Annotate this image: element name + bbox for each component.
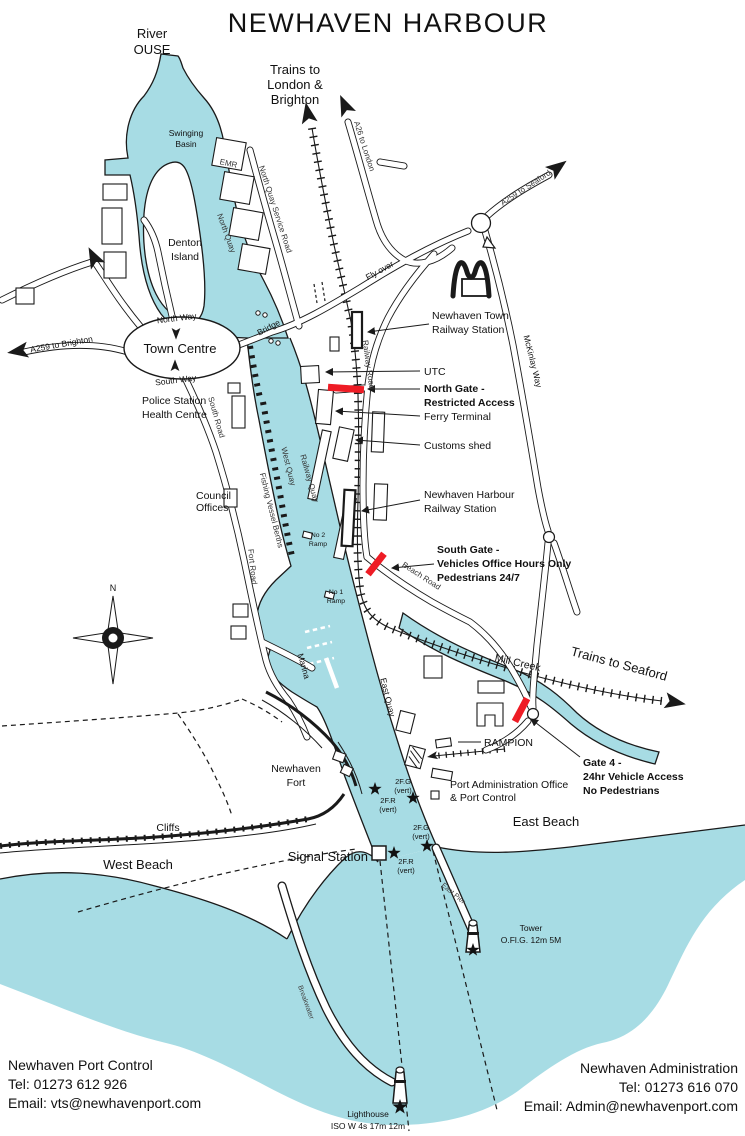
rampion-label: RAMPION [484,737,533,749]
police-health-label: Police Station [142,395,206,407]
west-beach-label: West Beach [103,857,173,872]
utc-label: UTC [424,366,446,378]
no1-ramp-label: No 1 [329,589,344,596]
harbour-station-label: Newhaven Harbour [424,489,515,501]
administration-tel: Tel: 01273 616 070 [619,1079,738,1095]
port-admin-label: & Port Control [450,792,516,804]
harbour-map: NEWHAVEN HARBOUR River OUSE Trains to Lo… [0,0,745,1136]
light-label-lower-west: 2F.R [398,857,414,866]
port-control-email: Email: vts@newhavenport.com [8,1095,201,1111]
trains-seaford-arrow [664,692,688,712]
mini-roundabout-gate4 [528,709,539,720]
newhaven-fort-label: Fort [287,777,306,789]
signal-station-label: Signal Station [288,849,368,864]
signal-station-box [372,846,386,860]
newhaven-town-station-building [352,312,362,348]
port-control-name: Newhaven Port Control [8,1057,153,1073]
utc-building [301,366,320,384]
mckinlay-way-label: McKinlay Way [522,334,545,389]
south-gate-label: Vehicles Office Hours Only [437,558,571,570]
south-gate-label: Pedestrians 24/7 [437,572,520,584]
gate4-label: 24hr Vehicle Access [583,771,684,783]
light-label-lower-east: (vert) [412,832,430,841]
newhaven-harbour-station-building [342,490,356,546]
channel-dash [322,282,325,301]
harbour-station-label: Railway Station [424,503,497,515]
no1-ramp-label: Ramp [327,598,345,605]
mcdonalds-icon [453,263,489,296]
rampion-building [478,681,504,693]
north-gate-label: North Gate - [424,383,485,395]
swinging-basin-label: Swinging [169,128,204,138]
council-offices-label: Offices [196,502,228,514]
south-gate-label: South Gate - [437,544,500,556]
roundabout [472,214,491,233]
trains-london-label: Trains to [270,62,320,77]
swinging-basin-label: Basin [175,139,197,149]
lighthouse-label: ISO W 4s 17m 12m [331,1121,405,1131]
customs-shed-label: Customs shed [424,440,491,452]
port-admin-building [477,703,503,726]
ferry-terminal-label: Ferry Terminal [424,411,491,423]
north-gate-label: Restricted Access [424,397,515,409]
channel-dash [314,284,317,303]
east-beach-label: East Beach [513,814,580,829]
gate4-label: Gate 4 - [583,757,622,769]
a259-brighton-label: A259 to Brighton [29,334,93,355]
council-offices-label: Council [196,490,231,502]
town-station-label: Railway Station [432,324,505,336]
mini-roundabout-north [544,532,555,543]
denton-island-label: Denton [168,237,202,249]
no2-ramp-label: Ramp [309,541,327,548]
trains-london-label: London & [267,77,323,92]
harbour-map-page: NEWHAVEN HARBOUR River OUSE Trains to Lo… [0,0,745,1136]
light-label-lower-east: 2F.G [413,823,429,832]
light-label-upper-east: (vert) [394,786,412,795]
town-station-label: Newhaven Town [432,310,509,322]
customs-shed-building [333,427,354,461]
newhaven-fort-label: Newhaven [271,763,321,775]
tower-label: O.Fl.G. 12m 5M [501,935,561,945]
ferry-terminal-building [316,389,334,424]
gate4-label: No Pedestrians [583,785,660,797]
a26-arrow [333,92,356,118]
lighthouse-label: Lighthouse [347,1109,389,1119]
administration-name: Newhaven Administration [580,1060,738,1076]
port-admin-label: Port Administration Office [450,779,568,791]
cliffs-label: Cliffs [156,822,179,834]
compass-north-label: N [110,583,117,593]
map-title: NEWHAVEN HARBOUR [228,8,549,38]
port-control-tel: Tel: 01273 612 926 [8,1076,127,1092]
no2-ramp-label: No 2 [311,532,326,539]
denton-island-label: Island [171,251,199,263]
tower-label: Tower [520,923,543,933]
light-label-upper-west: (vert) [379,805,397,814]
hatched-building [405,745,426,768]
river-ouse-label: River [137,26,168,41]
compass-rose [73,596,153,684]
light-label-upper-east: 2F.G [395,777,411,786]
a259-seaford-label: A259 to Seaford [499,168,552,207]
trains-seaford-label: Trains to Seaford [569,644,669,684]
town-centre-label: Town Centre [144,341,217,356]
buildings [16,138,504,799]
police-health-label: Health Centre [142,409,207,421]
light-label-lower-west: (vert) [397,866,415,875]
river-ouse-label: OUSE [134,42,171,57]
light-label-upper-west: 2F.R [380,796,396,805]
trains-london-label: Brighton [271,92,319,107]
administration-email: Email: Admin@newhavenport.com [524,1098,738,1114]
